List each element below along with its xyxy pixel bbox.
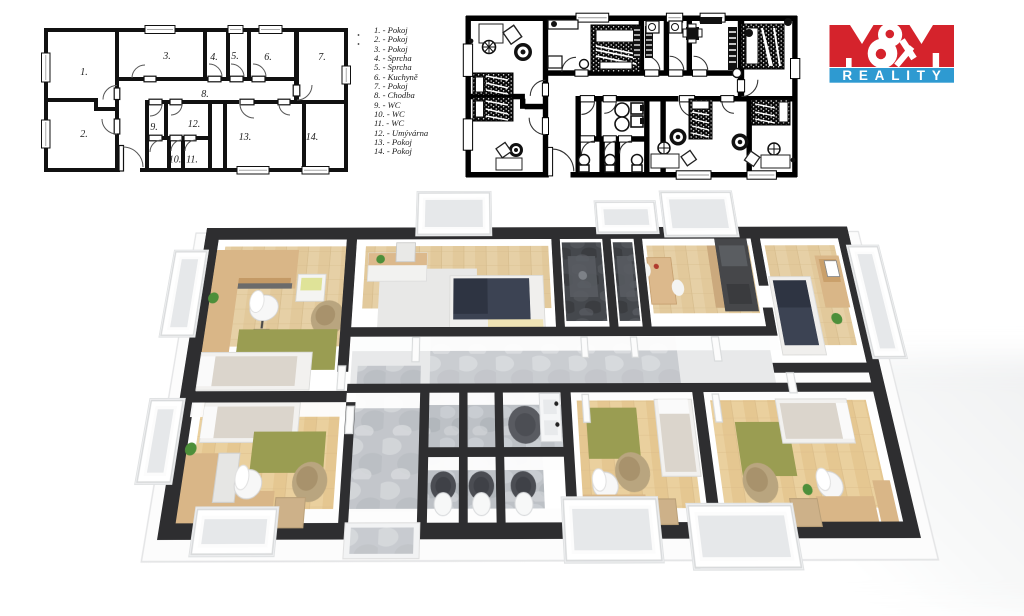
svg-text:REALITY: REALITY xyxy=(842,68,947,83)
svg-text:5.: 5. xyxy=(231,51,239,62)
svg-text:10.: 10. xyxy=(169,155,182,166)
svg-text:7.: 7. xyxy=(318,52,326,63)
svg-text:14.: 14. xyxy=(306,132,319,143)
svg-text:13.: 13. xyxy=(239,132,252,143)
svg-text:4.: 4. xyxy=(210,52,218,63)
svg-text:11.: 11. xyxy=(186,155,198,166)
svg-text:8.: 8. xyxy=(201,89,209,100)
svg-text:6.: 6. xyxy=(264,52,272,63)
svg-text:12.: 12. xyxy=(188,119,201,130)
svg-text:3.: 3. xyxy=(162,51,171,62)
svg-text:1.: 1. xyxy=(80,67,88,78)
svg-text:2.: 2. xyxy=(80,129,88,140)
svg-text:9.: 9. xyxy=(150,122,158,133)
